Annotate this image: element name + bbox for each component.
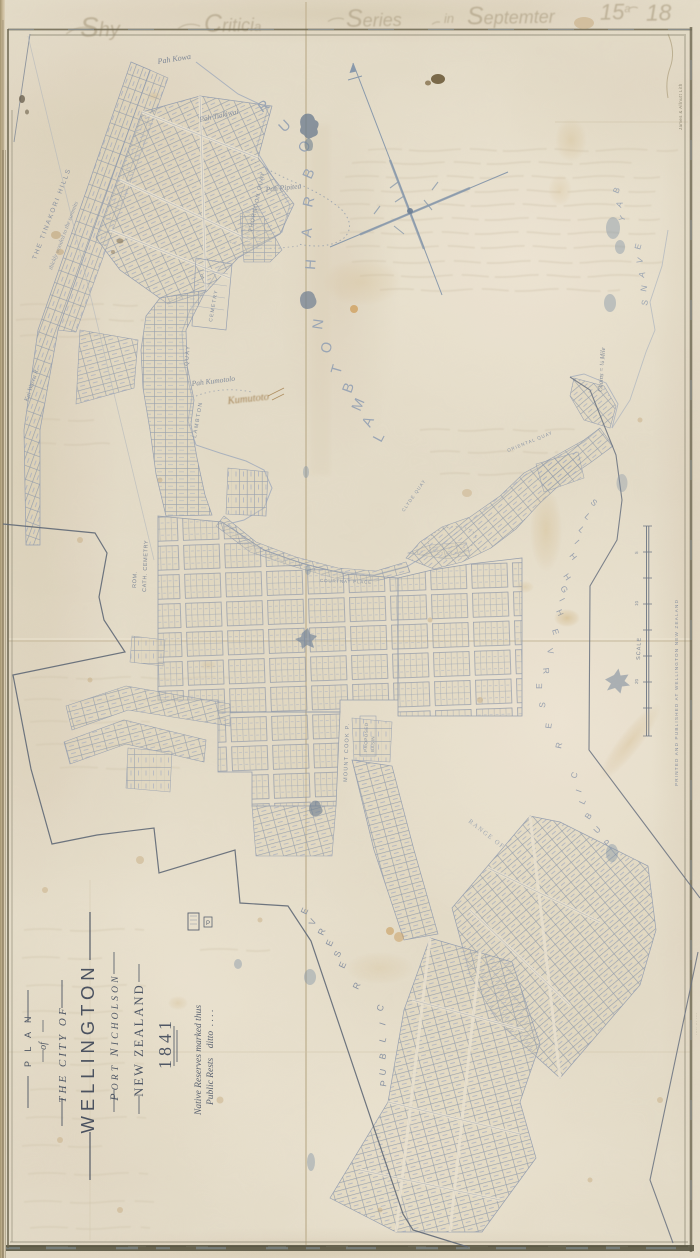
- svg-text:N: N: [310, 318, 327, 331]
- svg-text:R: R: [541, 667, 551, 674]
- svg-text:1841: 1841: [155, 1017, 175, 1069]
- svg-text:in: in: [444, 11, 454, 26]
- svg-text:SCALE: SCALE: [636, 637, 643, 660]
- svg-text:PROPOSED: PROPOSED: [363, 722, 369, 752]
- svg-text:NEW ZEALAND: NEW ZEALAND: [132, 983, 146, 1096]
- svg-text:H: H: [303, 259, 320, 271]
- svg-text:18: 18: [646, 0, 672, 26]
- svg-text:A: A: [299, 227, 316, 239]
- svg-text:Public Rests ditto . . . .: Public Rests ditto . . . .: [206, 1009, 216, 1106]
- svg-text:BASIN: BASIN: [370, 736, 376, 752]
- svg-text:James & Allnutt Lith: James & Allnutt Lith: [678, 83, 683, 130]
- svg-text:..... ... ....: ..... ... ....: [693, 1012, 698, 1035]
- svg-text:20: 20: [634, 678, 639, 684]
- svg-text:P: P: [206, 921, 210, 927]
- svg-text:WELLINGTON: WELLINGTON: [77, 963, 98, 1134]
- svg-text:PRINTED AND PUBLISHED AT WELLI: PRINTED AND PUBLISHED AT WELLINGTON NEW …: [674, 599, 679, 786]
- svg-text:ROM.: ROM.: [132, 571, 139, 588]
- svg-text:THE CITY OF: THE CITY OF: [57, 1005, 69, 1102]
- svg-text:Native Reserves marked thus: Native Reserves marked thus: [194, 1005, 204, 1116]
- svg-text:E: E: [534, 683, 544, 689]
- svg-text:S: S: [537, 701, 547, 708]
- svg-text:of: of: [38, 1041, 49, 1050]
- svg-text:10: 10: [634, 600, 639, 606]
